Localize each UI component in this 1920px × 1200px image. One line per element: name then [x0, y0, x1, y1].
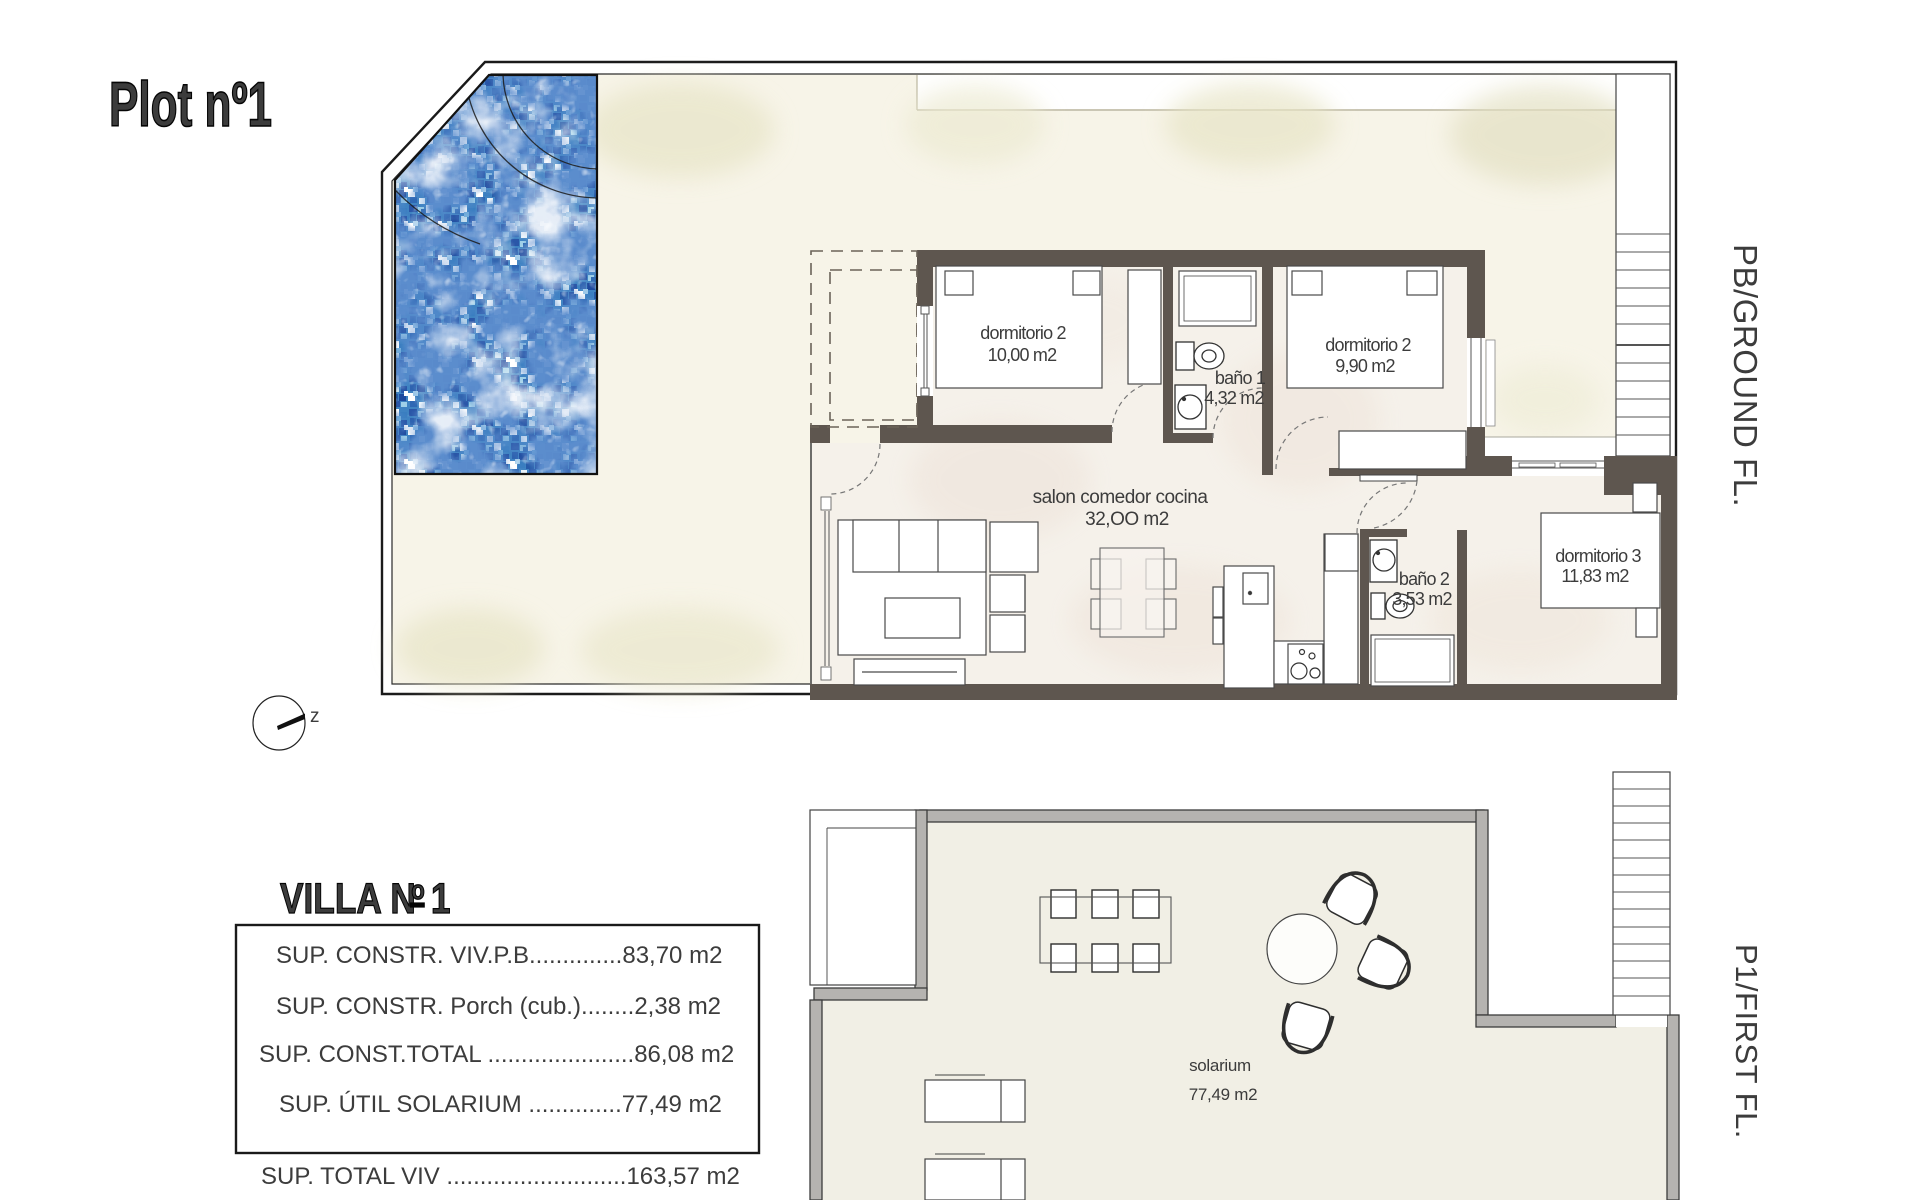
- svg-text:77,49 m2: 77,49 m2: [1189, 1085, 1257, 1104]
- svg-text:SUP. TOTAL VIV ...............: SUP. TOTAL VIV .........................…: [261, 1163, 740, 1190]
- svg-text:dormitorio 3: dormitorio 3: [1555, 546, 1641, 566]
- svg-text:SUP. CONSTR. Porch (cub.).....: SUP. CONSTR. Porch (cub.)........2,38 m2: [276, 993, 721, 1020]
- svg-text:VILLA N: VILLA N: [280, 875, 416, 923]
- svg-text:4,32 m2: 4,32 m2: [1204, 388, 1264, 408]
- svg-text:z: z: [310, 706, 320, 727]
- svg-text:32,OO m2: 32,OO m2: [1085, 509, 1169, 530]
- svg-text:dormitorio 2: dormitorio 2: [1325, 335, 1411, 355]
- svg-text:Plot nº1: Plot nº1: [109, 69, 272, 140]
- svg-text:1: 1: [431, 875, 451, 923]
- svg-text:P1/FIRST FL.: P1/FIRST FL.: [1729, 944, 1764, 1139]
- svg-text:SUP. ÚTIL SOLARIUM ...........: SUP. ÚTIL SOLARIUM ..............77,49 m…: [279, 1091, 722, 1118]
- svg-text:9,90 m2: 9,90 m2: [1335, 356, 1395, 376]
- svg-text:solarium: solarium: [1189, 1056, 1251, 1075]
- svg-text:SUP. CONSTR. VIV.P.B..........: SUP. CONSTR. VIV.P.B..............83,70 …: [276, 942, 722, 969]
- svg-text:baño 1: baño 1: [1215, 368, 1266, 388]
- svg-text:baño 2: baño 2: [1399, 569, 1450, 589]
- svg-text:3,53 m2: 3,53 m2: [1392, 589, 1452, 609]
- svg-text:salon comedor cocina: salon comedor cocina: [1033, 487, 1209, 508]
- svg-text:10,00 m2: 10,00 m2: [988, 345, 1057, 365]
- svg-text:PB/GROUND FL.: PB/GROUND FL.: [1727, 244, 1764, 507]
- svg-text:11,83 m2: 11,83 m2: [1561, 566, 1629, 586]
- svg-text:dormitorio 2: dormitorio 2: [980, 323, 1066, 343]
- svg-text:o: o: [411, 876, 425, 906]
- svg-text:SUP. CONST.TOTAL .............: SUP. CONST.TOTAL ......................8…: [259, 1041, 734, 1068]
